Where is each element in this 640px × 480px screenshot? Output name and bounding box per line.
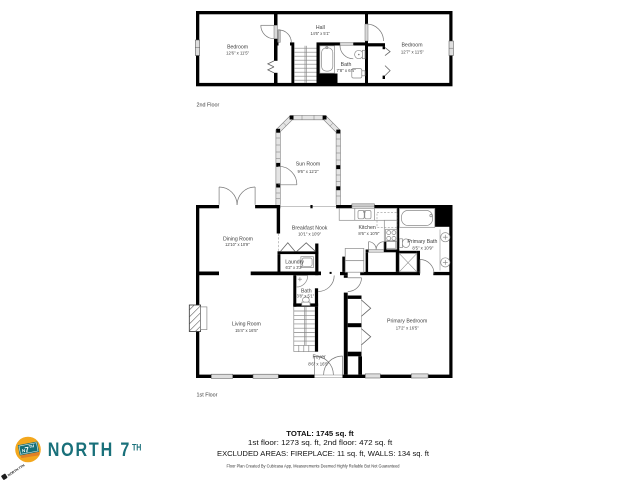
svg-text:1st Floor: 1st Floor	[197, 393, 218, 399]
svg-text:17'2" x 16'5": 17'2" x 16'5"	[396, 325, 419, 330]
svg-text:2nd Floor: 2nd Floor	[197, 103, 220, 109]
svg-text:9'6" x 12'2": 9'6" x 12'2"	[298, 169, 319, 174]
svg-text:Living Room: Living Room	[232, 321, 261, 327]
svg-text:TOTAL: 1745 sq. ft: TOTAL: 1745 sq. ft	[286, 429, 354, 438]
svg-text:3'8" x 5'1": 3'8" x 5'1"	[297, 294, 315, 299]
svg-text:10'1" x 10'9": 10'1" x 10'9"	[298, 232, 321, 237]
svg-text:Bedroom: Bedroom	[227, 44, 248, 50]
svg-text:8'6" x 10'9": 8'6" x 10'9"	[358, 231, 379, 236]
svg-text:Hall: Hall	[316, 25, 325, 31]
svg-text:12'10" x 10'9": 12'10" x 10'9"	[225, 242, 250, 247]
svg-text:7'8" x 6'4": 7'8" x 6'4"	[337, 68, 356, 73]
svg-text:15'4" x 16'5": 15'4" x 16'5"	[235, 328, 258, 333]
svg-text:Floor Plan Created By Cubicasa: Floor Plan Created By Cubicasa App, Meas…	[227, 464, 401, 469]
svg-text:12'7" x 11'5": 12'7" x 11'5"	[401, 50, 424, 55]
svg-text:8'5" x 10'9": 8'5" x 10'9"	[412, 246, 433, 251]
svg-text:Bedroom: Bedroom	[401, 43, 422, 49]
svg-text:Foyer: Foyer	[312, 355, 326, 361]
svg-text:Breakfast Nook: Breakfast Nook	[292, 225, 328, 231]
svg-text:Sun Room: Sun Room	[296, 161, 321, 167]
svg-text:6'2" x 3'2": 6'2" x 3'2"	[285, 265, 303, 270]
svg-text:Primary Bath: Primary Bath	[407, 239, 437, 245]
svg-text:NORTH 7: NORTH 7	[48, 439, 131, 461]
svg-text:TH: TH	[28, 443, 34, 449]
svg-text:Primary Bedroom: Primary Bedroom	[387, 319, 427, 325]
svg-text:1st floor: 1273 sq. ft, 2nd fl: 1st floor: 1273 sq. ft, 2nd floor: 472 s…	[248, 438, 393, 447]
svg-text:8'6" x 16'5": 8'6" x 16'5"	[308, 361, 329, 366]
svg-text:14'6" x 5'1": 14'6" x 5'1"	[310, 31, 330, 36]
svg-text:TH: TH	[132, 443, 141, 453]
svg-text:EXCLUDED AREAS: FIREPLACE: 11: EXCLUDED AREAS: FIREPLACE: 11 sq. ft, WA…	[217, 449, 430, 458]
svg-text:12'6" x 11'5": 12'6" x 11'5"	[226, 51, 249, 56]
svg-text:NORTH 7TH: NORTH 7TH	[7, 463, 26, 477]
